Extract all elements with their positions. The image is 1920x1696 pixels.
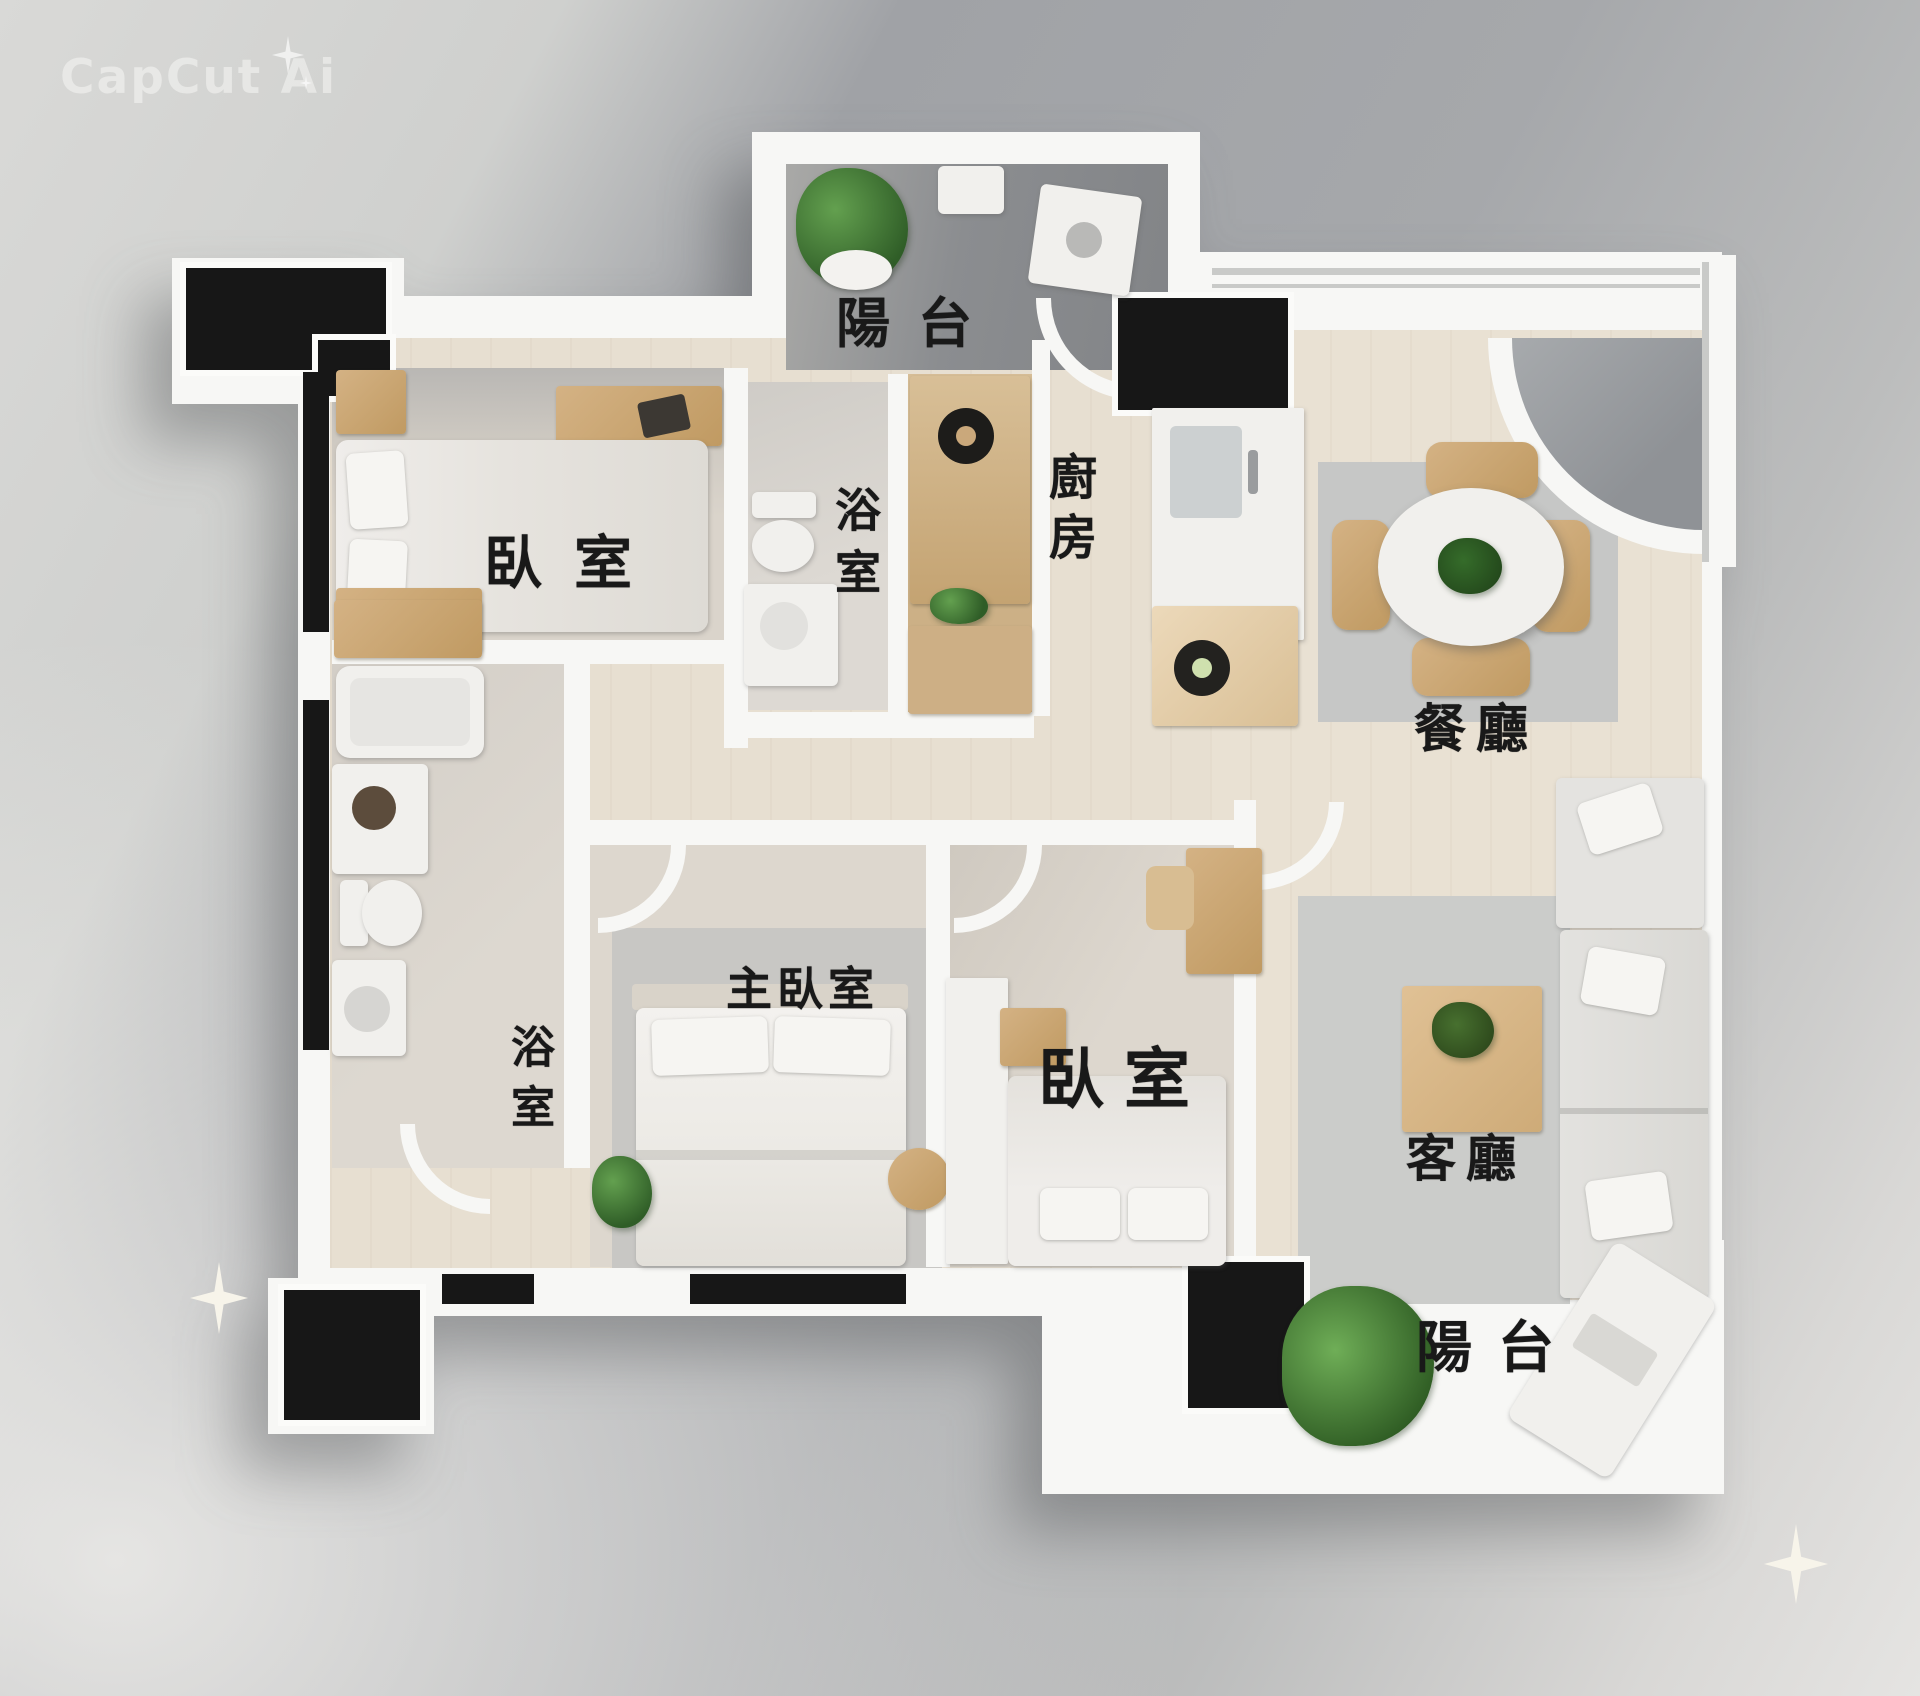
bedroom-bottom-desk bbox=[1186, 848, 1262, 974]
label-bedroom-top: 臥室 bbox=[484, 534, 664, 592]
bedroom-bottom-pillow-1 bbox=[1040, 1188, 1120, 1240]
dining-table-plant bbox=[1438, 538, 1502, 594]
living-table-plant bbox=[1432, 1002, 1494, 1058]
label-bathroom-top: 浴室 bbox=[832, 486, 878, 610]
column-bottom-mid-b bbox=[690, 1274, 906, 1304]
balcony-sink bbox=[938, 166, 1004, 214]
master-plant bbox=[592, 1156, 652, 1228]
bathroom-top-toilet-bowl bbox=[752, 520, 814, 572]
label-balcony-bottom: 陽台 bbox=[1416, 1320, 1580, 1376]
floor-plan-scene: CapCut Ai bbox=[0, 0, 1920, 1696]
bathroom-top-toilet-tank bbox=[752, 492, 816, 518]
label-master-bedroom: 主臥室 bbox=[726, 966, 879, 1012]
bedroom-top-nightstand bbox=[336, 370, 406, 434]
kitchen-sink bbox=[1170, 426, 1242, 518]
master-pillow-1 bbox=[651, 1016, 769, 1076]
bathroom-left-toilet-bowl bbox=[362, 880, 422, 946]
column-left-strip-lower bbox=[303, 700, 329, 1050]
label-dining: 餐廳 bbox=[1414, 704, 1538, 756]
label-kitchen: 廚房 bbox=[1044, 452, 1092, 572]
label-living: 客廳 bbox=[1406, 1134, 1526, 1184]
column-left-strip-upper bbox=[303, 372, 329, 632]
bathroom-left-bathtub-inner bbox=[350, 678, 470, 746]
master-blanket-fold bbox=[636, 1150, 906, 1160]
bathroom-left-washer-door bbox=[344, 986, 390, 1032]
label-balcony-top: 陽台 bbox=[836, 296, 1000, 350]
pantry-vase-hole bbox=[956, 426, 976, 446]
bedroom-bottom-wardrobe bbox=[946, 978, 1008, 1264]
balcony-washer-door bbox=[1066, 222, 1102, 258]
dining-chair-bottom bbox=[1412, 638, 1530, 696]
column-bottom-mid-a bbox=[442, 1274, 534, 1304]
label-bedroom-bottom: 臥室 bbox=[1038, 1046, 1210, 1112]
column-top-right bbox=[1118, 298, 1288, 410]
label-bathroom-left: 浴室 bbox=[506, 1024, 550, 1144]
balcony-top-plant-pot bbox=[820, 250, 892, 290]
bathroom-top-sink-basin bbox=[760, 602, 808, 650]
kitchen-kettle-lid bbox=[1192, 658, 1212, 678]
pantry-plant bbox=[930, 588, 988, 624]
bathroom-left-shelf bbox=[334, 600, 482, 658]
pantry-lower-cabinet bbox=[908, 626, 1032, 714]
bedroom-top-pillow-1 bbox=[345, 450, 408, 530]
kitchen-faucet bbox=[1248, 450, 1258, 494]
master-pillow-2 bbox=[773, 1016, 891, 1076]
master-stool bbox=[888, 1148, 950, 1210]
bedroom-bottom-desk-chair bbox=[1146, 866, 1194, 930]
column-bottom-left bbox=[284, 1290, 420, 1420]
bathroom-left-vanity-bowl bbox=[352, 786, 396, 830]
living-sofa-seatline bbox=[1560, 1108, 1708, 1114]
bedroom-bottom-pillow-2 bbox=[1128, 1188, 1208, 1240]
living-sofa-pillow-2 bbox=[1584, 1171, 1674, 1242]
